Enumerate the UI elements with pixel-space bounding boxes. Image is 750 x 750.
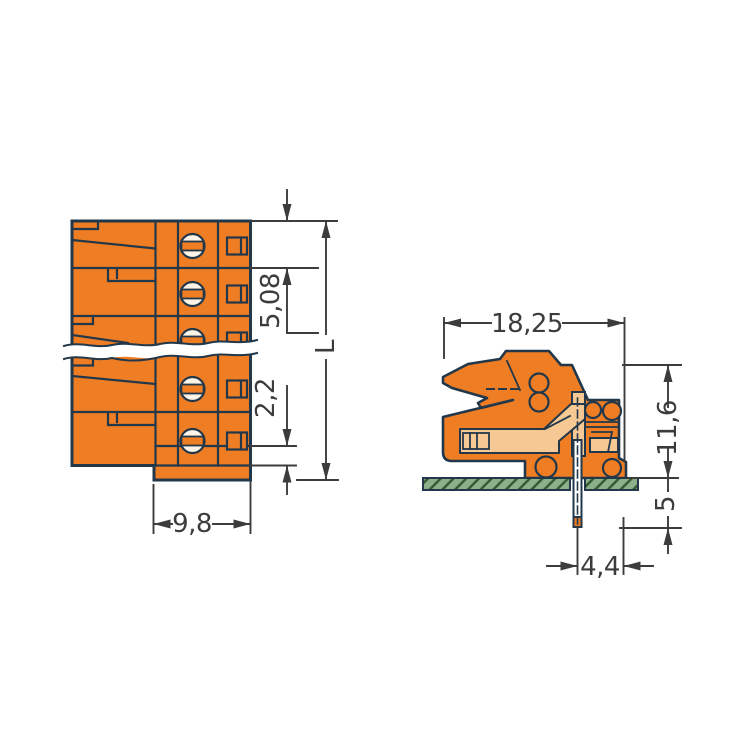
dim-label-width: 9,8 <box>172 509 212 539</box>
front-view: 5,08 2,2 L 9,8 <box>64 190 341 539</box>
dim-label-pin-length: 5 <box>651 496 681 512</box>
technical-drawing-page: 5,08 2,2 L 9,8 <box>0 0 750 750</box>
dim-label-depth: 18,25 <box>491 309 563 339</box>
dim-label-edge: 2,2 <box>251 378 281 418</box>
dim-label-pitch: 5,08 <box>256 273 286 329</box>
pcb-board <box>423 478 638 490</box>
side-view: 18,25 11,6 5 4,4 <box>423 309 683 582</box>
dim-label-pin-offset: 4,4 <box>580 552 620 582</box>
connector-dimension-drawing: 5,08 2,2 L 9,8 <box>0 0 750 750</box>
dim-label-height: 11,6 <box>653 400 683 456</box>
dim-label-length: L <box>311 339 341 354</box>
